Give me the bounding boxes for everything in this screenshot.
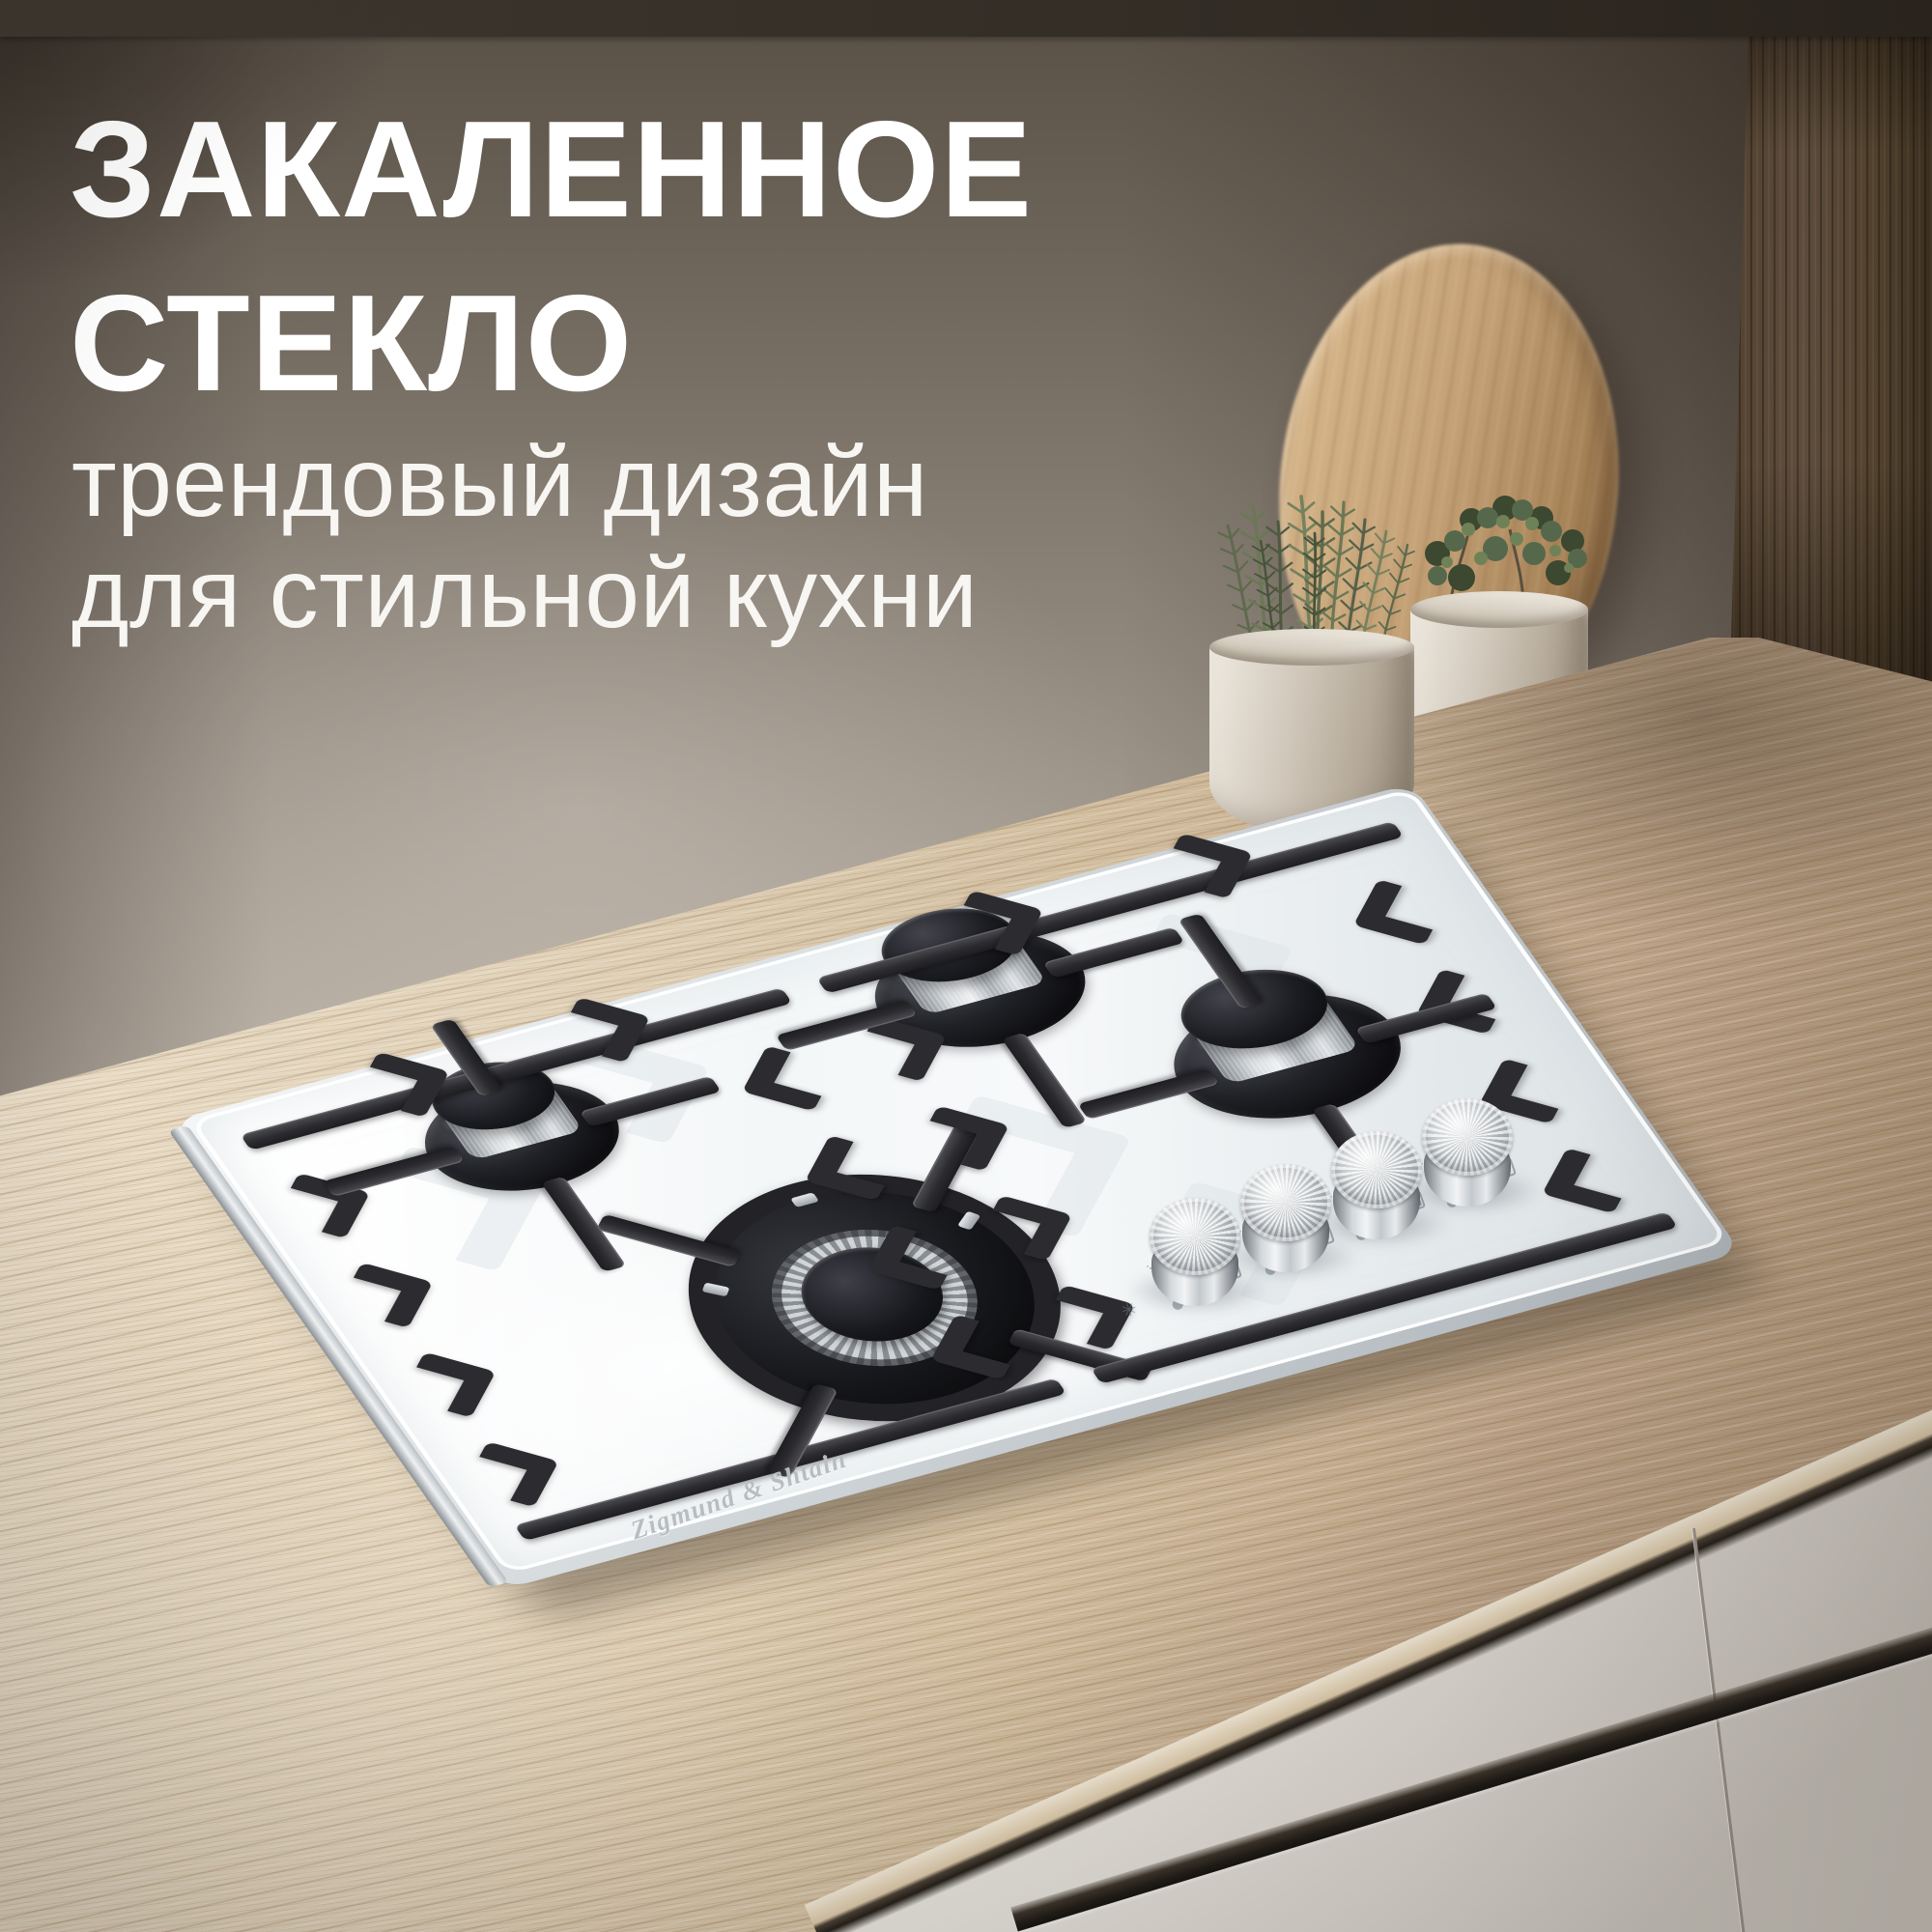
headline-line-1: ЗАКАЛЕННОЕ — [70, 83, 1033, 257]
subtitle: трендовый дизайн для стильной кухни — [71, 427, 978, 650]
subtitle-line-2: для стильной кухни — [71, 538, 978, 649]
ceiling-shadow-strip — [0, 0, 1932, 37]
control-knob-4 — [1422, 1098, 1513, 1218]
headline: ЗАКАЛЕННОЕ СТЕКЛО — [70, 83, 1033, 432]
headline-line-2: СТЕКЛО — [70, 257, 1033, 431]
kitchen-product-photo: ✳ Zigmund & Shtain ЗАКАЛЕННОЕ СТЕКЛО т — [0, 0, 1932, 1932]
subtitle-line-1: трендовый дизайн — [71, 427, 978, 538]
